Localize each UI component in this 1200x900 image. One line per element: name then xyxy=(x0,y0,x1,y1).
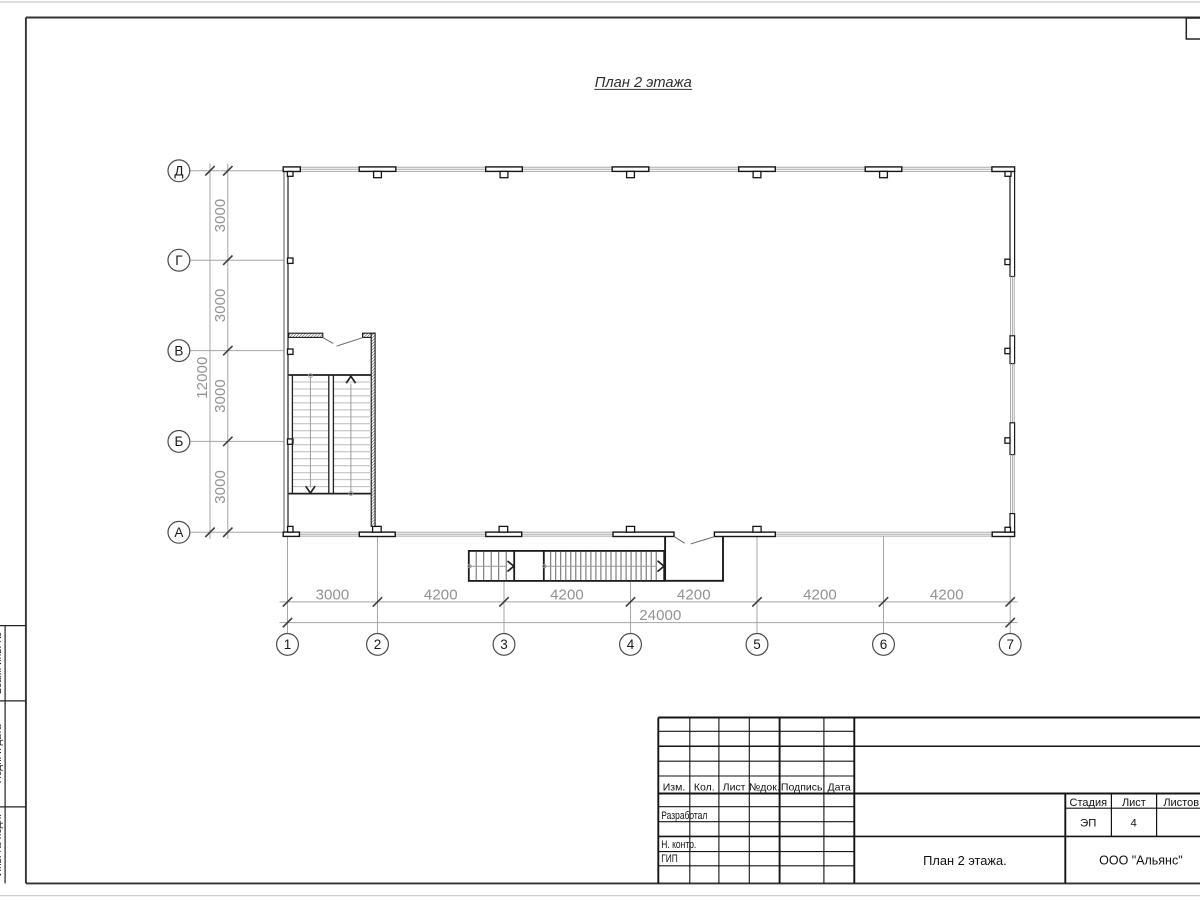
svg-text:2: 2 xyxy=(374,637,382,652)
svg-text:Б: Б xyxy=(174,434,183,449)
svg-text:1: 1 xyxy=(284,637,292,652)
svg-text:Дата: Дата xyxy=(827,781,850,793)
svg-text:ООО "Альянс": ООО "Альянс" xyxy=(1099,852,1183,867)
svg-text:ГИП: ГИП xyxy=(661,853,678,865)
svg-text:3000: 3000 xyxy=(212,379,229,413)
svg-text:Взам. инв. №: Взам. инв. № xyxy=(0,632,4,694)
svg-text:ЭП: ЭП xyxy=(1080,817,1096,829)
svg-text:Подп. и дата: Подп. и дата xyxy=(0,724,4,783)
svg-text:Лист: Лист xyxy=(723,781,746,793)
svg-text:Стадия: Стадия xyxy=(1070,797,1108,809)
svg-text:3000: 3000 xyxy=(212,289,229,323)
svg-text:Г: Г xyxy=(175,253,183,268)
svg-text:4: 4 xyxy=(627,637,635,652)
svg-text:Подпись: Подпись xyxy=(781,781,823,793)
svg-text:Кол.: Кол. xyxy=(694,781,715,793)
svg-text:4200: 4200 xyxy=(424,586,458,603)
svg-text:Разработал: Разработал xyxy=(661,810,707,822)
svg-text:7: 7 xyxy=(1006,637,1014,652)
svg-text:Инв. № подл.: Инв. № подл. xyxy=(0,814,4,876)
svg-text:5: 5 xyxy=(753,637,761,652)
svg-text:4200: 4200 xyxy=(677,586,711,603)
svg-text:Д: Д xyxy=(174,164,183,179)
svg-text:А: А xyxy=(174,525,183,540)
svg-text:4200: 4200 xyxy=(550,586,584,603)
svg-text:В: В xyxy=(174,343,183,358)
svg-text:Лист: Лист xyxy=(1122,797,1146,809)
svg-text:4200: 4200 xyxy=(930,586,964,603)
svg-text:Листов: Листов xyxy=(1163,797,1199,809)
svg-text:3000: 3000 xyxy=(316,586,350,603)
svg-text:№док.: №док. xyxy=(749,781,780,793)
svg-text:3000: 3000 xyxy=(212,199,229,233)
svg-text:12000: 12000 xyxy=(194,357,211,399)
svg-text:План 2 этажа.: План 2 этажа. xyxy=(923,853,1007,868)
svg-text:4: 4 xyxy=(1131,817,1137,829)
svg-text:3000: 3000 xyxy=(212,470,229,504)
svg-text:Изм.: Изм. xyxy=(663,781,686,793)
svg-text:6: 6 xyxy=(880,637,888,652)
svg-text:Н. контр.: Н. контр. xyxy=(661,839,696,851)
svg-text:3: 3 xyxy=(500,637,508,652)
svg-text:4200: 4200 xyxy=(803,586,837,603)
svg-text:План 2 этажа: План 2 этажа xyxy=(595,74,692,91)
svg-text:24000: 24000 xyxy=(639,607,681,624)
